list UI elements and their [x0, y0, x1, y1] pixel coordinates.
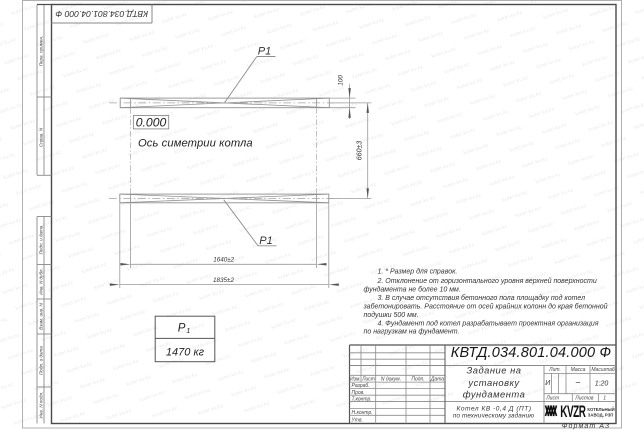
- svg-text:КОТЕЛЬНЫЙ: КОТЕЛЬНЫЙ: [587, 407, 614, 412]
- svg-text:Изм.: Изм.: [350, 377, 361, 383]
- svg-text:1. * Размер для справок.: 1. * Размер для справок.: [378, 268, 458, 276]
- svg-text:N докум.: N докум.: [381, 377, 401, 383]
- svg-text:Подп. и дата: Подп. и дата: [38, 225, 43, 254]
- svg-text:100: 100: [338, 75, 345, 86]
- svg-text:КВТД.034.801.04.000 Ф: КВТД.034.801.04.000 Ф: [55, 9, 148, 19]
- svg-text:Справ. N: Справ. N: [38, 127, 43, 147]
- svg-text:Лит.: Лит.: [548, 367, 561, 373]
- svg-text:Подп. и дата: Подп. и дата: [38, 346, 43, 375]
- svg-text:установку: установку: [467, 377, 520, 388]
- svg-text:Лист: Лист: [545, 396, 559, 402]
- svg-text:по техническому заданию: по техническому заданию: [453, 411, 534, 419]
- svg-text:забетонировать. Расстояние от: забетонировать. Расстояние от осей крайн…: [363, 303, 608, 311]
- svg-text:KVZR: KVZR: [560, 401, 586, 421]
- svg-text:Инв. N дубл.: Инв. N дубл.: [38, 268, 43, 295]
- svg-text:Пров.: Пров.: [352, 390, 365, 396]
- svg-text:Утв.: Утв.: [352, 418, 363, 424]
- svg-text:подушки 500 мм.: подушки 500 мм.: [364, 311, 419, 319]
- svg-text:Задание на: Задание на: [467, 364, 522, 375]
- svg-text:Масштаб: Масштаб: [591, 367, 615, 373]
- svg-text:фундамента не более 10 мм.: фундамента не более 10 мм.: [364, 285, 461, 293]
- svg-text:Подп.: Подп.: [411, 377, 424, 383]
- svg-text:1: 1: [603, 396, 606, 402]
- svg-text:по нагрузкам на фундамент.: по нагрузкам на фундамент.: [364, 328, 460, 336]
- svg-text:Масса: Масса: [571, 367, 586, 373]
- svg-text:Инв. N подл.: Инв. N подл.: [38, 392, 43, 419]
- svg-text:Дата: Дата: [430, 377, 444, 383]
- svg-text:Лист: Лист: [361, 377, 375, 383]
- svg-text:Взам. инв. N: Взам. инв. N: [38, 302, 43, 329]
- svg-text:4. Фундамент под котел разраба: 4. Фундамент под котел разрабатывает про…: [378, 319, 599, 327]
- svg-text:2. Отклонение от горизонтально: 2. Отклонение от горизонтального уровня …: [377, 277, 597, 285]
- svg-text:ЗАВОД, РЗП: ЗАВОД, РЗП: [588, 413, 613, 418]
- svg-text:1835±2: 1835±2: [213, 277, 234, 284]
- svg-text:Т.контр.: Т.контр.: [352, 396, 372, 402]
- svg-text:0.000: 0.000: [136, 116, 167, 130]
- svg-text:Н.контр.: Н.контр.: [352, 410, 373, 416]
- svg-text:Р1: Р1: [259, 235, 272, 247]
- svg-text:1640±2: 1640±2: [213, 257, 234, 264]
- svg-text:фундамента: фундамента: [463, 389, 526, 400]
- svg-text:3. В случае отсутствия бетонно: 3. В случае отсутствия бетонного пола пл…: [378, 294, 586, 302]
- svg-text:Перв. примен.: Перв. примен.: [38, 36, 43, 67]
- svg-text:1:20: 1:20: [595, 380, 609, 387]
- svg-text:–: –: [575, 378, 581, 387]
- svg-text:660±3: 660±3: [357, 141, 364, 161]
- svg-text:Разраб.: Разраб.: [352, 383, 370, 389]
- svg-text:Формат А3: Формат А3: [562, 423, 610, 430]
- svg-text:1470 кг: 1470 кг: [166, 347, 205, 359]
- svg-text:Р1: Р1: [258, 46, 271, 58]
- svg-text:Ось симетрии котла: Ось симетрии котла: [138, 137, 253, 149]
- svg-text:КВТД.034.801.04.000 Ф: КВТД.034.801.04.000 Ф: [451, 345, 612, 361]
